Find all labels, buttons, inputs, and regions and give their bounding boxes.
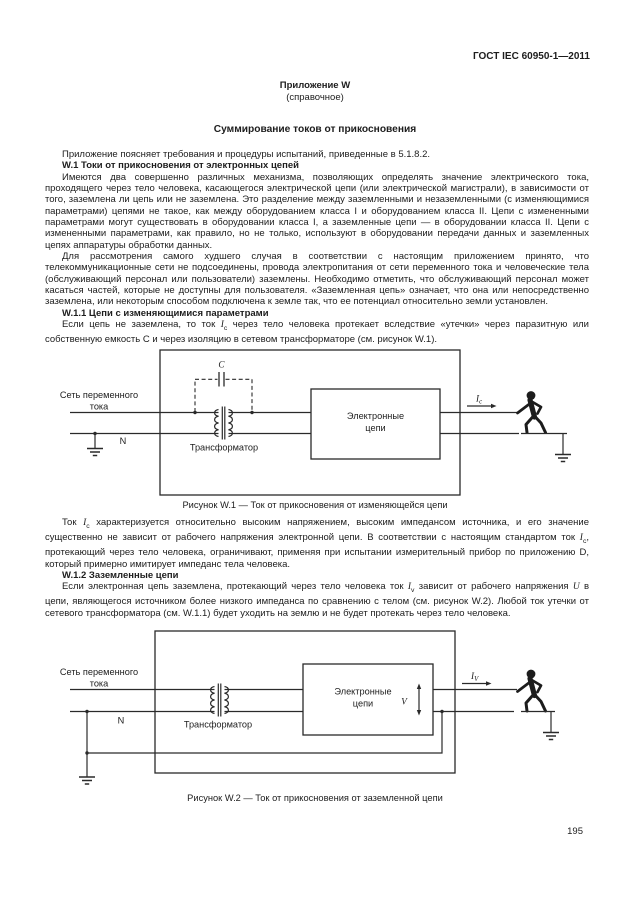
mid-text-block: Ток Ic характеризуется относительно высо… <box>45 517 589 619</box>
mains-label: тока <box>90 679 109 689</box>
symbol-U: U <box>573 582 580 592</box>
mains-ground-icon <box>79 777 95 784</box>
figure-w1-diagram: C Электронные цепи Сеть переменного тока… <box>0 346 630 498</box>
section-heading: W.1 Токи от прикосновения от электронных… <box>45 160 589 171</box>
equipment-enclosure-box <box>160 350 460 495</box>
capacitor-label: C <box>218 359 225 369</box>
paragraph: Имеются два совершенно различных механиз… <box>45 172 589 251</box>
paragraph: Для рассмотрения самого худшего случая в… <box>45 251 589 308</box>
touch-current-label: Ic <box>475 393 482 405</box>
intro-text-block: Приложение поясняет требования и процеду… <box>45 149 589 346</box>
paragraph: Если цепь не заземлена, то ток Ic через … <box>45 319 589 346</box>
mains-label: Сеть переменного <box>60 667 138 677</box>
figure-w2-diagram: Электронные цепи V Сеть переменного тока… <box>0 627 630 790</box>
transformer-label: Трансформатор <box>190 442 258 452</box>
section-heading: W.1.1 Цепи с изменяющимися параметрами <box>45 308 589 319</box>
annex-subtitle: (справочное) <box>45 92 585 104</box>
paragraph: Ток Ic характеризуется относительно высо… <box>45 517 589 570</box>
equipment-enclosure-box <box>155 631 455 773</box>
mains-ground-icon <box>87 448 103 455</box>
circuit-box-label: Электронные <box>334 687 391 697</box>
person-ground-icon <box>543 733 559 740</box>
neutral-label: N <box>118 716 125 726</box>
circuit-box-label: Электронные <box>347 411 404 421</box>
touch-current-label: IV <box>470 671 479 683</box>
voltage-arrow-icon <box>417 684 421 716</box>
capacitor-icon <box>193 372 253 414</box>
circuit-box-label: цепи <box>365 423 385 433</box>
paragraph: Приложение поясняет требования и процеду… <box>45 149 589 160</box>
person-icon <box>518 391 546 432</box>
mains-label: тока <box>90 401 109 411</box>
person-icon <box>518 670 546 711</box>
earth-return-wire <box>87 712 442 754</box>
circuit-box-label: цепи <box>353 699 373 709</box>
transformer-icon <box>215 406 233 439</box>
document-title: Суммирование токов от прикосновения <box>45 124 585 136</box>
transformer-label: Трансформатор <box>184 720 252 730</box>
person-ground-icon <box>555 454 571 461</box>
mains-label: Сеть переменного <box>60 390 138 400</box>
figure-w1-caption: Рисунок W.1 — Ток от прикосновения от из… <box>45 500 585 511</box>
page-number: 195 <box>567 826 583 837</box>
figure-w2-caption: Рисунок W.2 — Ток от прикосновения от за… <box>45 793 585 804</box>
voltage-label: V <box>401 697 408 707</box>
standard-number: ГОСТ IEC 60950-1—2011 <box>473 51 590 62</box>
annex-title: Приложение W <box>45 80 585 92</box>
paragraph: Если электронная цепь заземлена, протека… <box>45 581 589 619</box>
neutral-label: N <box>120 436 127 446</box>
document-page: ГОСТ IEC 60950-1—2011 Приложение W (спра… <box>0 0 630 913</box>
section-heading: W.1.2 Заземленные цепи <box>45 570 589 581</box>
